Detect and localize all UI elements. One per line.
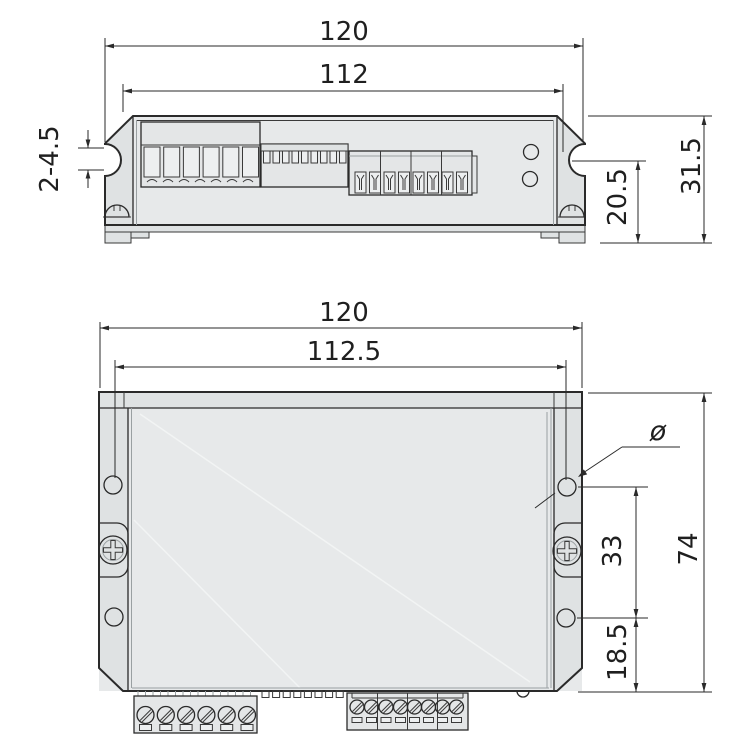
top-wall-band (99, 392, 582, 408)
technical-drawing-page: 120 112 2-4.5 20.5 (0, 0, 749, 750)
right-foot (559, 232, 585, 243)
dim-hole-spacing: 33 (577, 487, 648, 618)
dim-label-slot: 2-4.5 (35, 125, 65, 192)
dim-label-33: 33 (598, 534, 628, 567)
dim-mount-slot: 2-4.5 (35, 125, 104, 192)
dim-label-112: 112 (319, 60, 369, 90)
right-foot-tab (541, 232, 559, 238)
plan-view: 120 112.5 ø 33 (99, 298, 712, 733)
dim-label-112-5: 112.5 (307, 337, 381, 367)
left-foot-tab (131, 232, 149, 238)
dim-label-120-plan: 120 (319, 298, 369, 328)
dim-hole-to-edge: 18.5 (603, 618, 638, 692)
cover-plate (99, 392, 582, 691)
dim-label-18-5: 18.5 (603, 623, 633, 681)
signal-terminal-block (349, 151, 477, 195)
dim-label-120-top: 120 (319, 17, 369, 47)
dip-switch-bank (261, 144, 348, 187)
power-terminal-block (141, 122, 260, 187)
dim-label-diameter: ø (649, 416, 667, 447)
dim-label-74: 74 (674, 532, 704, 565)
plan-signal-terminal-block (347, 693, 468, 730)
front-elevation-view: 120 112 2-4.5 20.5 (35, 17, 712, 243)
base-plate (105, 225, 585, 232)
dim-label-31-5: 31.5 (677, 137, 707, 195)
dim-label-20-5: 20.5 (603, 168, 633, 226)
left-foot (105, 232, 131, 243)
drawing-canvas: 120 112 2-4.5 20.5 (0, 0, 749, 750)
plan-power-terminal-block (134, 691, 257, 733)
